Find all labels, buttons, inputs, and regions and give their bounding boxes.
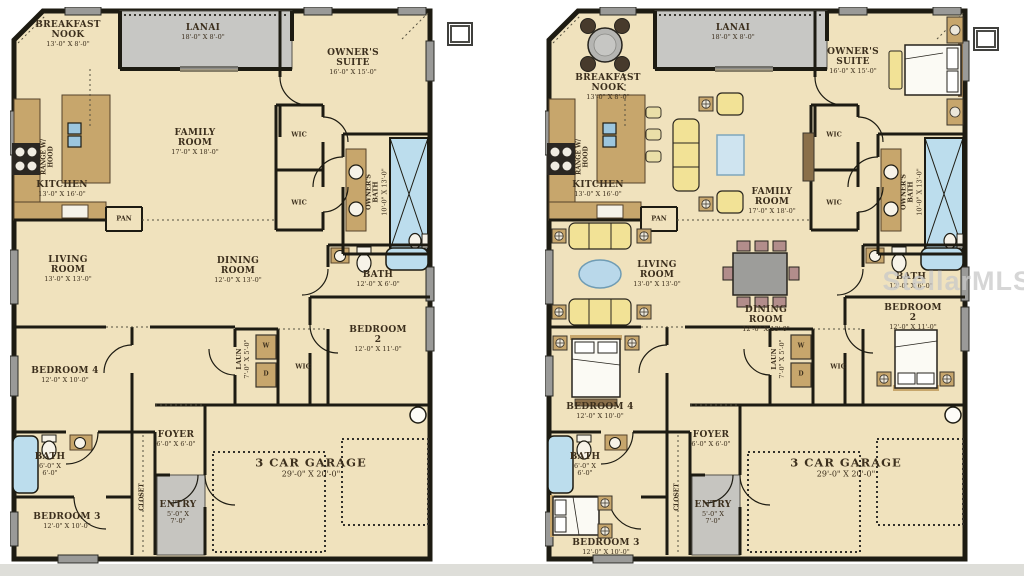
family-sofa <box>673 119 699 191</box>
armchair <box>717 93 743 115</box>
legend-box-inner <box>976 30 996 48</box>
sink-icon <box>68 123 81 134</box>
dryer-icon <box>256 363 276 387</box>
water-heater-icon <box>410 407 426 423</box>
legend-box-inner <box>450 25 470 43</box>
tv-console <box>803 133 814 181</box>
dining-table <box>733 253 787 295</box>
bar-stools <box>646 107 661 162</box>
washer-icon <box>256 335 276 359</box>
tub-icon <box>386 248 428 270</box>
bed-bench <box>889 51 902 89</box>
floorplan-svg-unfurnished <box>10 7 440 569</box>
floorplan-page: BREAKFAST NOOK13'-0" X 8'-0" LANAI18'-0"… <box>0 0 1024 576</box>
bed-bench <box>575 399 617 406</box>
tub-icon <box>13 436 38 493</box>
floorplan-geometry <box>10 7 434 563</box>
exterior-walls <box>14 11 430 559</box>
range-icon <box>12 143 40 175</box>
armchair <box>717 191 743 213</box>
family-rug <box>717 135 744 175</box>
bottom-shadow-strip <box>0 564 1024 576</box>
legend-box <box>447 22 473 46</box>
owners-vanity <box>346 149 366 231</box>
legend-box <box>973 27 999 51</box>
living-rug <box>579 260 621 288</box>
floor-plan-unfurnished: BREAKFAST NOOK13'-0" X 8'-0" LANAI18'-0"… <box>10 7 440 569</box>
watermark: StellarMLS <box>882 266 1024 297</box>
entry-area <box>157 475 205 555</box>
lanai-area <box>120 11 292 69</box>
